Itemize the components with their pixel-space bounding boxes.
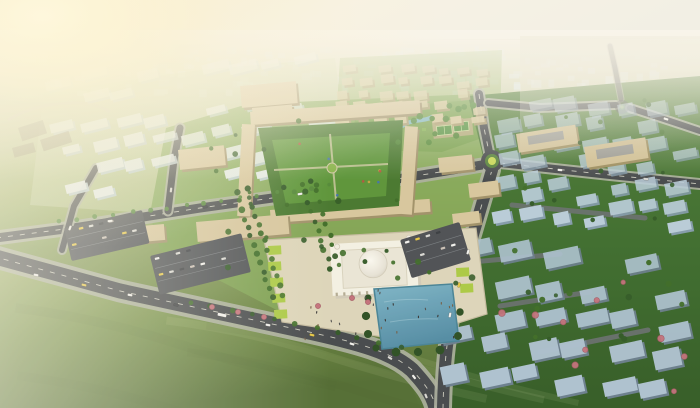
warm-tint <box>0 0 700 408</box>
city-masterplan-render: Aerial 3D rendering of a desert city mas… <box>0 0 700 408</box>
aerial-render-stage: Aerial 3D rendering of a desert city mas… <box>0 0 700 408</box>
layer-haze <box>0 0 700 408</box>
